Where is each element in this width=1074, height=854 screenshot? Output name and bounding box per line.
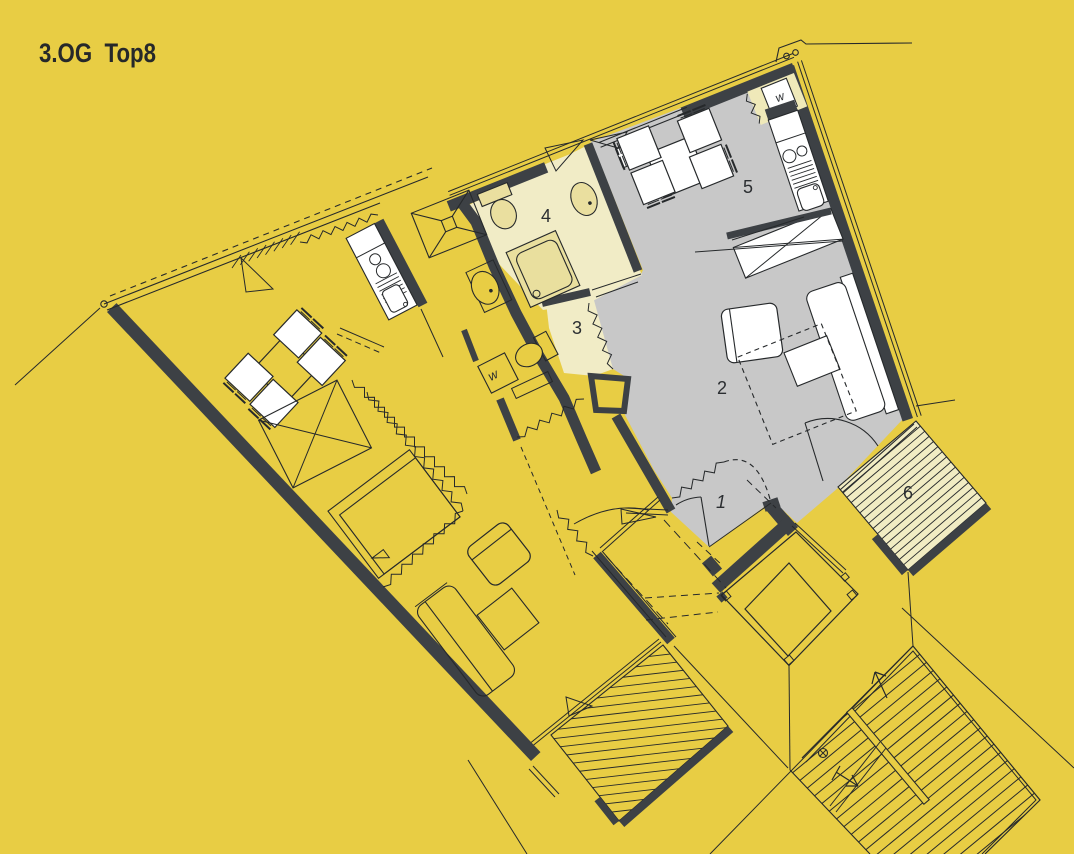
svg-text:4: 4 (541, 206, 551, 226)
svg-text:1: 1 (716, 492, 726, 512)
svg-text:5: 5 (743, 177, 753, 197)
svg-text:3.OG Top8: 3.OG Top8 (39, 38, 156, 68)
svg-text:6: 6 (903, 483, 913, 503)
svg-text:2: 2 (717, 378, 727, 398)
svg-text:3: 3 (572, 318, 582, 338)
